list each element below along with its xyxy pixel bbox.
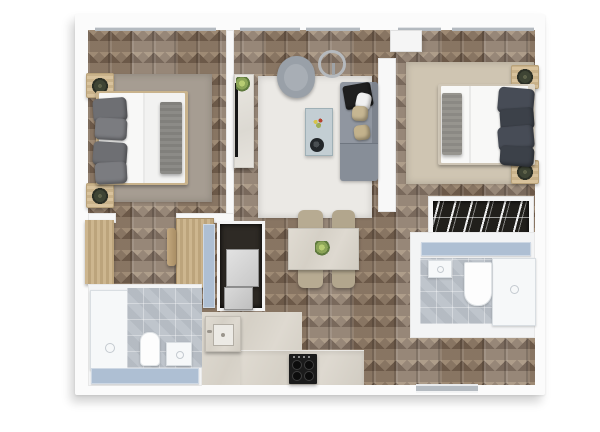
burner-icon (292, 360, 302, 370)
shower (90, 290, 129, 370)
basin-drain-icon (176, 351, 184, 359)
floor-plan-canvas (0, 0, 600, 432)
washing-machine (226, 249, 259, 287)
nightstand (86, 183, 114, 208)
apartment-floor-plan (75, 14, 545, 395)
open-wardrobe-hanging-clothes (433, 201, 529, 235)
kitchen-sink-unit (205, 316, 241, 352)
cabinet-door (167, 228, 176, 266)
arc-floor-lamp-icon (318, 50, 346, 78)
burner-icon (292, 371, 302, 381)
window-sill (240, 27, 300, 31)
armchair (277, 56, 315, 98)
cooktop (289, 354, 317, 384)
utility-door-panel (203, 224, 215, 308)
sink-basin (213, 324, 234, 346)
dryer (224, 287, 253, 310)
decor-bowl-icon (310, 138, 324, 152)
window-sill (95, 27, 216, 31)
bathroom-right (410, 232, 535, 338)
dining-table (288, 228, 359, 270)
lamp-stem (332, 63, 335, 75)
wall-bedroom-right (378, 58, 396, 212)
bedroom-right-door-leaf (390, 30, 422, 52)
bed-runner-blanket (442, 93, 462, 155)
beige-cushion (352, 106, 369, 122)
faucet-icon (207, 330, 212, 333)
toilet (140, 332, 160, 366)
window-sill (452, 27, 534, 31)
vanity-counter (91, 368, 199, 384)
basin-drain-icon (437, 266, 444, 273)
armchair-cushion (284, 64, 308, 91)
bathroom-left (88, 284, 202, 386)
washbasin (166, 342, 192, 366)
pillow (94, 117, 127, 141)
sofa-chaise (340, 143, 378, 181)
vanity-counter (421, 242, 531, 256)
potted-plant-icon (236, 77, 251, 93)
basin-drain-icon (221, 333, 225, 337)
beige-cushion (353, 124, 371, 141)
duvet-crease (469, 86, 471, 163)
table-plant-icon (315, 241, 332, 257)
burner-icon (304, 371, 314, 381)
shower (492, 258, 536, 326)
burner-icon (304, 360, 314, 370)
shower-drain-icon (510, 285, 519, 294)
pillow (94, 161, 127, 185)
washbasin (428, 260, 452, 278)
window-sill (306, 27, 360, 31)
dining-chair (332, 210, 355, 230)
tv-panel (235, 83, 238, 157)
utility-closet (217, 221, 265, 311)
potted-plant-icon (517, 69, 533, 85)
pillow (499, 145, 534, 167)
dining-chair (298, 268, 323, 288)
dining-chair (332, 268, 355, 288)
wall-bedroom-left (226, 30, 234, 223)
cooktop-knobs (293, 356, 313, 358)
dining-chair (298, 210, 323, 230)
potted-plant-icon (92, 188, 108, 204)
tv-console (234, 74, 254, 168)
bed-runner-blanket (160, 102, 182, 174)
wardrobe-cabinet (85, 220, 114, 284)
entry-door-threshold (416, 384, 478, 393)
toilet (464, 262, 492, 306)
decor-flowers-icon (312, 117, 324, 129)
coffee-table (305, 108, 333, 156)
shower-drain-icon (105, 343, 115, 353)
